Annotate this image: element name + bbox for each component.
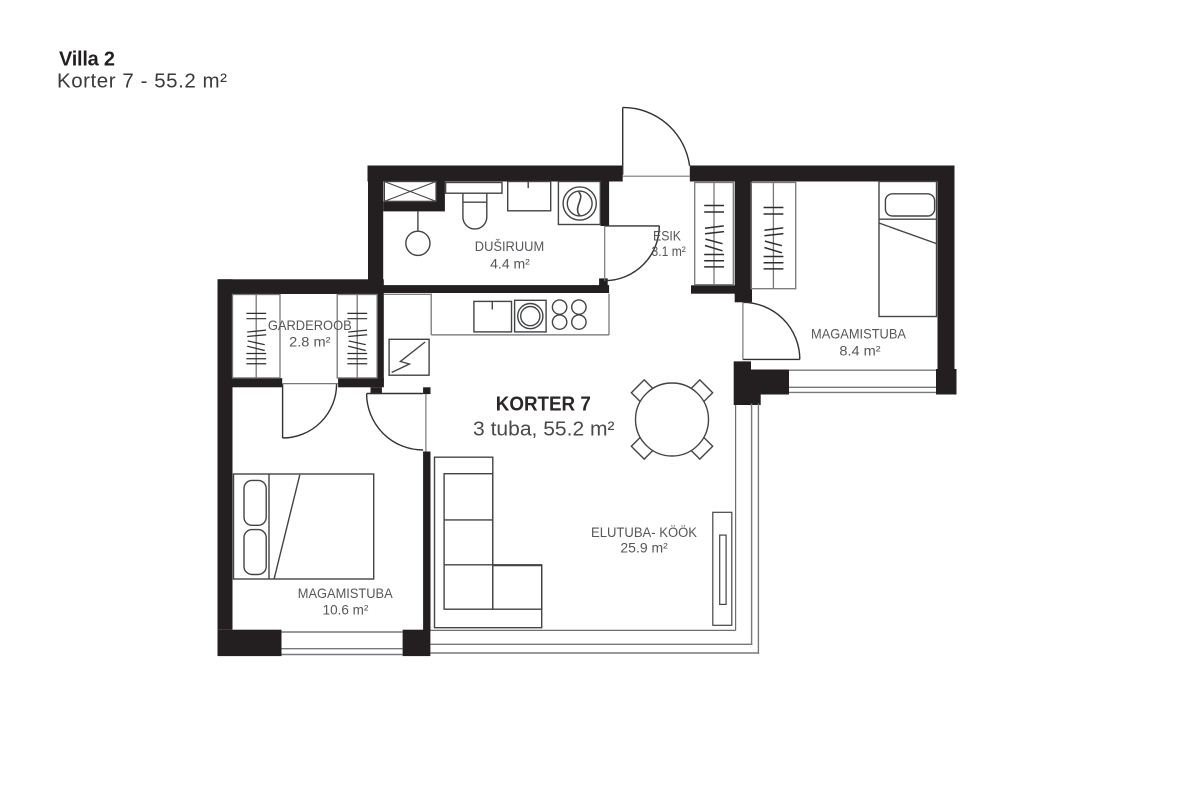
svg-text:KORTER 7: KORTER 7 xyxy=(496,394,591,416)
svg-text:3.1 m²: 3.1 m² xyxy=(652,243,687,259)
svg-text:3 tuba, 55.2 m²: 3 tuba, 55.2 m² xyxy=(473,419,615,441)
svg-text:ESIK: ESIK xyxy=(653,227,682,243)
svg-text:MAGAMISTUBA: MAGAMISTUBA xyxy=(811,326,907,342)
svg-text:MAGAMISTUBA: MAGAMISTUBA xyxy=(298,585,393,601)
svg-text:ELUTUBA- KÖÖK: ELUTUBA- KÖÖK xyxy=(591,523,698,540)
svg-text:GARDEROOB: GARDEROOB xyxy=(268,317,352,333)
svg-text:DUŠIRUUM: DUŠIRUUM xyxy=(475,238,544,254)
svg-text:8.4 m²: 8.4 m² xyxy=(839,343,881,359)
svg-text:25.9 m²: 25.9 m² xyxy=(620,539,668,555)
svg-text:Villa 2: Villa 2 xyxy=(59,49,115,71)
svg-text:4.4 m²: 4.4 m² xyxy=(490,255,530,271)
svg-text:10.6 m²: 10.6 m² xyxy=(323,602,369,618)
svg-text:2.8 m²: 2.8 m² xyxy=(289,334,331,350)
svg-text:Korter 7 - 55.2 m²: Korter 7 - 55.2 m² xyxy=(57,70,227,93)
